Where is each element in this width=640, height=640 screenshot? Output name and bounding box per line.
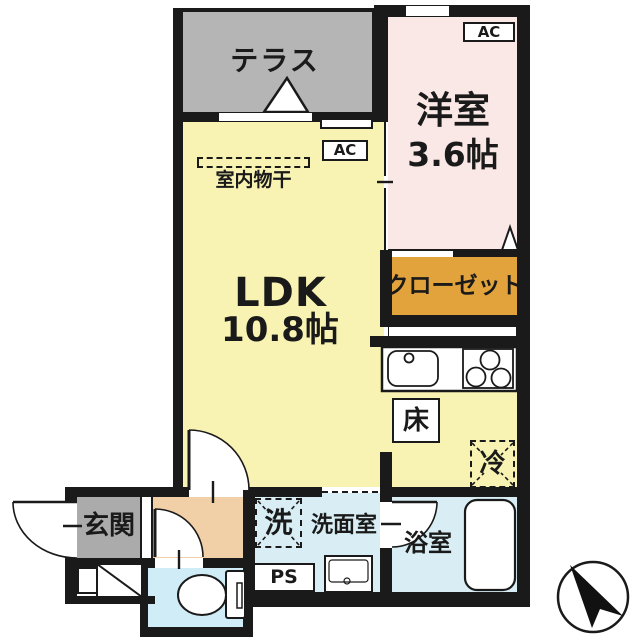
toilet-fixture: [178, 571, 245, 618]
ldk-label: LDK: [208, 272, 353, 314]
terrace-step-triangle: [264, 78, 308, 112]
pipe-space-box: PS: [253, 563, 315, 592]
ldk-door: [189, 430, 249, 490]
floor-storage-label: 床: [392, 398, 440, 443]
western-room-label: 洋室: [400, 88, 506, 132]
bathroom-label: 浴室: [396, 528, 460, 558]
refrigerator-label: 冷: [470, 440, 515, 488]
kitchen-wall-window: [388, 326, 517, 337]
terrace-label: テラス: [217, 44, 333, 78]
terrace-window: [218, 112, 313, 122]
under-stair-storage: [78, 564, 142, 597]
sink-faucet: [405, 354, 414, 363]
toilet-door: [155, 509, 203, 557]
indoor-drying-label: 室内物干: [195, 169, 312, 191]
bathtub: [465, 500, 515, 590]
ac-unit: [320, 118, 373, 129]
indoor-drying-box: [197, 157, 310, 168]
ac-label-ldk: AC: [322, 140, 368, 161]
north-arrow: [558, 562, 628, 632]
washroom-label: 洗面室: [298, 512, 390, 540]
floorplan: AC AC PS 床 冷 洗 テラス 洋室 3.6帖 室内物干 LDK 10.8…: [0, 0, 640, 640]
washbasin: [325, 556, 372, 592]
ac-label-western: AC: [463, 22, 515, 42]
closet-label: クローゼット: [393, 270, 516, 302]
entrance-door: [13, 502, 77, 558]
western-room-size: 3.6帖: [398, 134, 508, 174]
closet-door-triangle: [502, 227, 518, 250]
western-room-window: [405, 5, 450, 17]
entrance-label: 玄関: [79, 511, 139, 541]
washer-label: 洗: [255, 498, 302, 548]
kitchen-counter: [382, 347, 517, 391]
ldk-size: 10.8帖: [200, 310, 360, 350]
